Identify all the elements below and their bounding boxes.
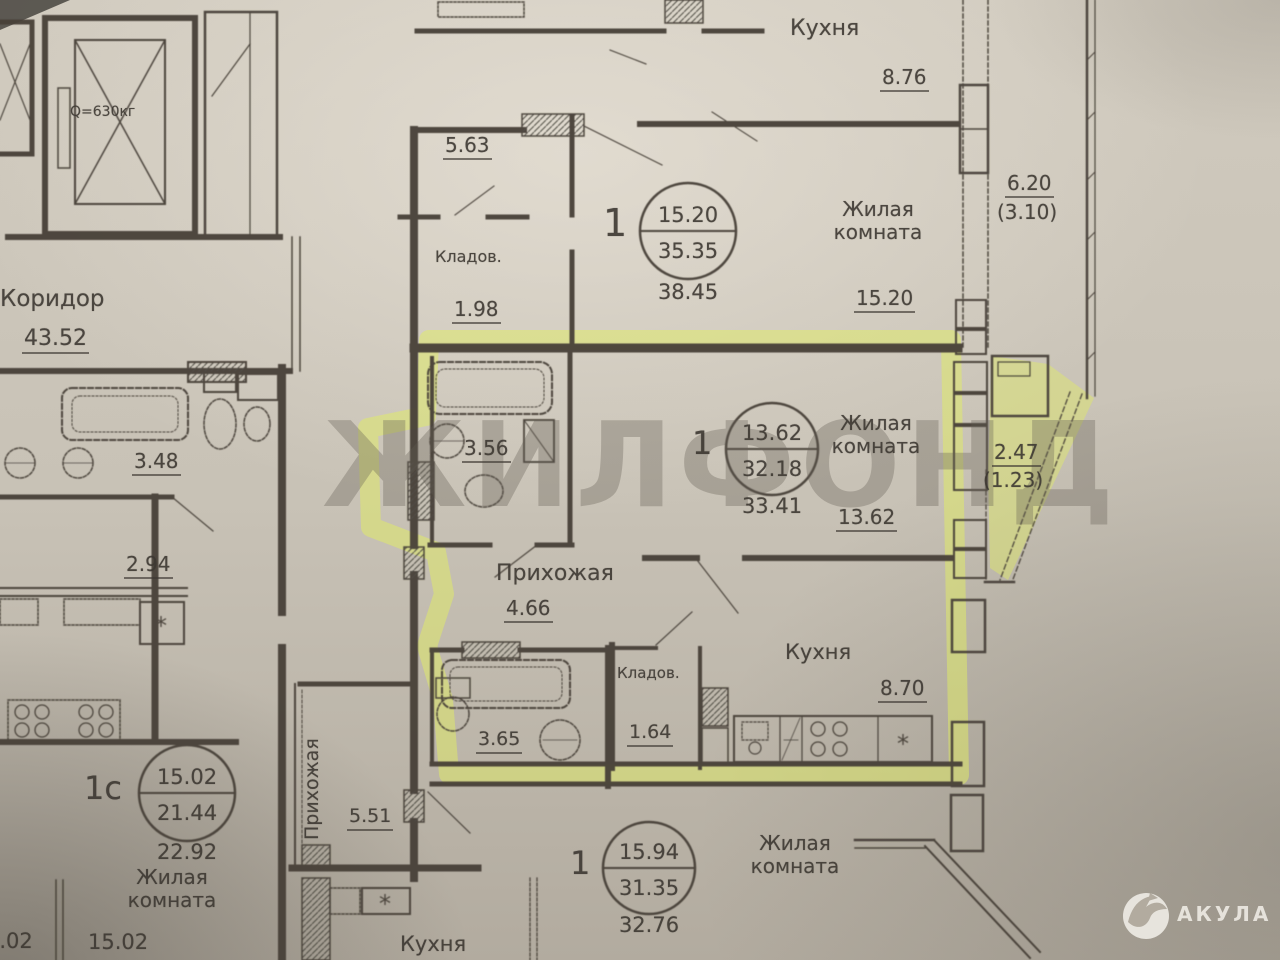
corridor-area: 43.52 (22, 326, 89, 354)
fridge-icon: * (155, 612, 167, 640)
mid-living-room-label: Жилая комната (818, 412, 934, 458)
edge-partial-area: 5.02 (0, 929, 33, 953)
bottom-hallway-label: Прихожая (302, 716, 324, 840)
top-hall-area: 5.63 (443, 134, 492, 160)
corridor-label: Коридор (0, 286, 105, 312)
left-living-room-label: Жилая комната (112, 866, 232, 912)
stamp-mid-rooms: 1 (692, 425, 712, 462)
stamp-1c-living: 15.02 (145, 765, 229, 789)
top-kitchen-label: Кухня (790, 16, 859, 41)
mid-balcony-area: 2.47 (992, 441, 1041, 467)
stamp-1c-total: 21.44 (145, 801, 229, 825)
stamp-mid-total: 32.18 (730, 457, 814, 481)
stamp-1c-total-alt: 22.92 (145, 840, 229, 864)
mid-storage-label: Кладов. (617, 665, 680, 682)
mid-hallway-label: Прихожая (496, 561, 614, 586)
mid-kitchen-label: Кухня (785, 640, 851, 664)
mid-bathroom-area: 3.56 (462, 437, 511, 463)
left-bathroom-area: 3.48 (132, 450, 181, 476)
stamp-top-rooms: 1 (603, 202, 627, 246)
fridge-icon: * (379, 890, 391, 918)
stamp-mid-living: 13.62 (730, 421, 814, 445)
top-balcony-reduced: (3.10) (997, 201, 1057, 224)
fridge-icon: * (897, 730, 909, 758)
top-living-room-area: 15.20 (854, 287, 915, 313)
mid-hallway-area: 4.66 (504, 597, 553, 623)
stamp-top-total: 35.35 (646, 239, 730, 263)
left-hall-area: 2.94 (124, 553, 173, 579)
top-living-room-label: Жилая комната (818, 198, 938, 244)
floorplan-photo: * * * ЖИЛФОНД Q=630кг Коридор 43.52 3.48… (0, 0, 1280, 960)
stamp-top-living: 15.20 (646, 203, 730, 227)
stamp-mid-total-alt: 33.41 (730, 494, 814, 518)
akula-logo-text: АКУЛА (1177, 902, 1271, 926)
stamp-1c-rooms: 1с (84, 770, 122, 807)
mid-storage-area: 1.64 (627, 722, 673, 747)
mid-kitchen-area: 8.70 (878, 677, 927, 703)
mid-living-room-area: 13.62 (836, 506, 897, 532)
top-storage-label: Кладов. (435, 248, 502, 266)
elevator-capacity-label: Q=630кг (70, 104, 135, 120)
stamp-bottom-total: 31.35 (607, 876, 691, 900)
elevator-shaft (0, 12, 280, 237)
stamp-bottom-rooms: 1 (570, 845, 590, 882)
stamp-bottom-living: 15.94 (607, 840, 691, 864)
akula-logo-icon (1123, 893, 1169, 939)
top-balcony-area: 6.20 (1005, 172, 1054, 198)
stamp-bottom-total-alt: 32.76 (607, 913, 691, 937)
bottom-living-room-label: Жилая комната (736, 832, 854, 878)
left-living-room-area: 15.02 (88, 930, 148, 954)
top-kitchen-area: 8.76 (880, 66, 929, 92)
stamp-top-total-alt: 38.45 (646, 280, 730, 304)
top-storage-area: 1.98 (452, 298, 501, 324)
bottom-apartment-fixtures (330, 660, 580, 914)
bottom-hallway-area: 5.51 (347, 806, 393, 831)
mid-balcony-reduced: (1.23) (983, 469, 1043, 492)
bottom-bathroom-area: 3.65 (476, 729, 522, 754)
bottom-kitchen-label: Кухня (400, 932, 466, 956)
